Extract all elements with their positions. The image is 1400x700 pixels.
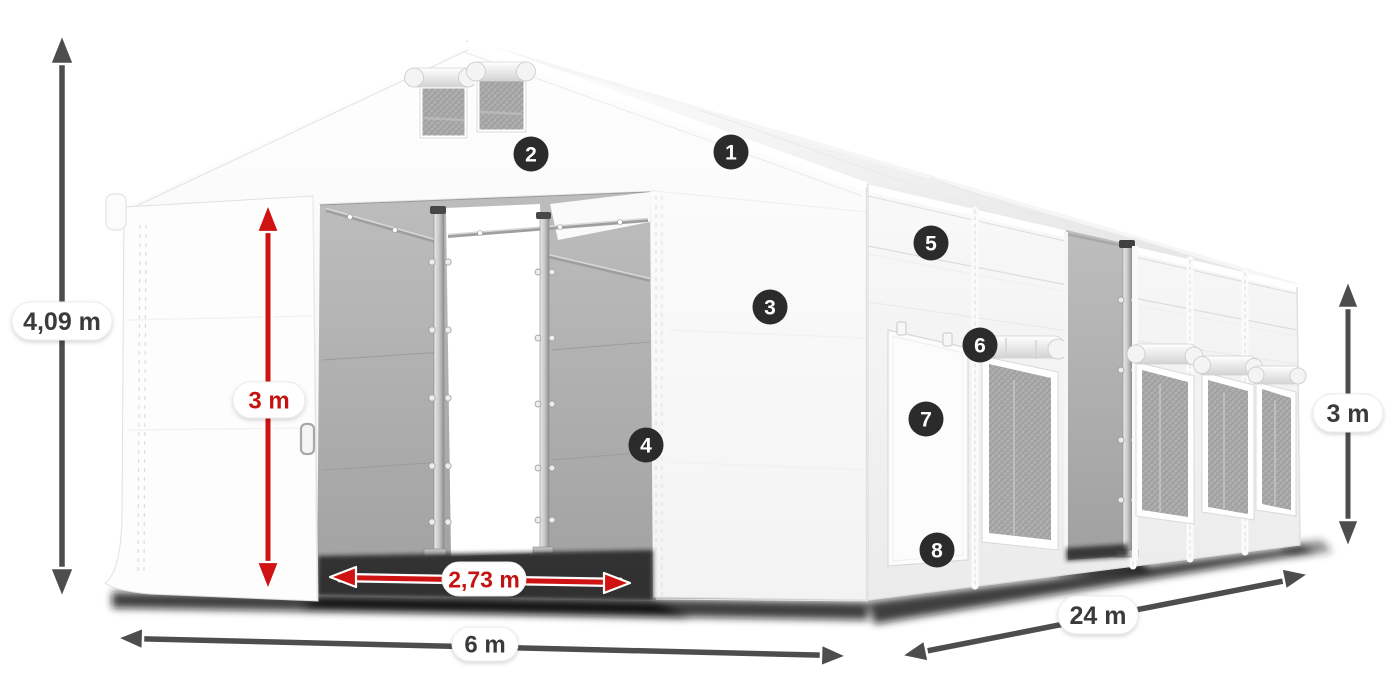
- inner-height-label: 3 m: [248, 388, 289, 415]
- eave-corner-tab: [106, 194, 126, 230]
- door-tab: [897, 322, 906, 335]
- callout-2-number: 2: [525, 144, 537, 167]
- tent-dimension-diagram: 4,09 m 3 m 2,73 m 6 m: [0, 0, 1400, 700]
- callout-3-number: 3: [764, 297, 776, 320]
- width-label: 6 m: [464, 632, 505, 659]
- callout-5-number: 5: [925, 233, 937, 256]
- callout-6: 6: [963, 328, 998, 363]
- callout-8: 8: [920, 533, 955, 568]
- callout-1-number: 1: [725, 142, 737, 165]
- door-handle: [301, 424, 314, 454]
- door-tab: [943, 333, 952, 346]
- callout-4-number: 4: [640, 435, 652, 458]
- callout-2: 2: [514, 137, 549, 172]
- gable-vent-right: [467, 62, 536, 132]
- total-height-label: 4,09 m: [23, 308, 101, 336]
- diagram-canvas: 4,09 m 3 m 2,73 m 6 m: [0, 0, 1400, 700]
- side-height-label: 3 m: [1326, 400, 1369, 428]
- front-entrance-opening: [317, 192, 653, 601]
- callout-6-number: 6: [974, 335, 986, 358]
- callout-3: 3: [753, 290, 788, 325]
- see-through-gap: [446, 204, 548, 556]
- length-label: 24 m: [1070, 602, 1127, 630]
- callout-8-number: 8: [931, 540, 943, 563]
- callout-7: 7: [909, 402, 944, 437]
- callout-4: 4: [629, 428, 664, 463]
- callout-1: 1: [714, 135, 749, 170]
- side-entrance-door-panel: [888, 322, 968, 566]
- door-frame-pole: [1123, 244, 1132, 554]
- callout-5: 5: [914, 226, 949, 261]
- callout-7-number: 7: [920, 409, 932, 432]
- door-width-label: 2,73 m: [448, 566, 520, 592]
- side-sliding-door-opening: [1066, 230, 1138, 561]
